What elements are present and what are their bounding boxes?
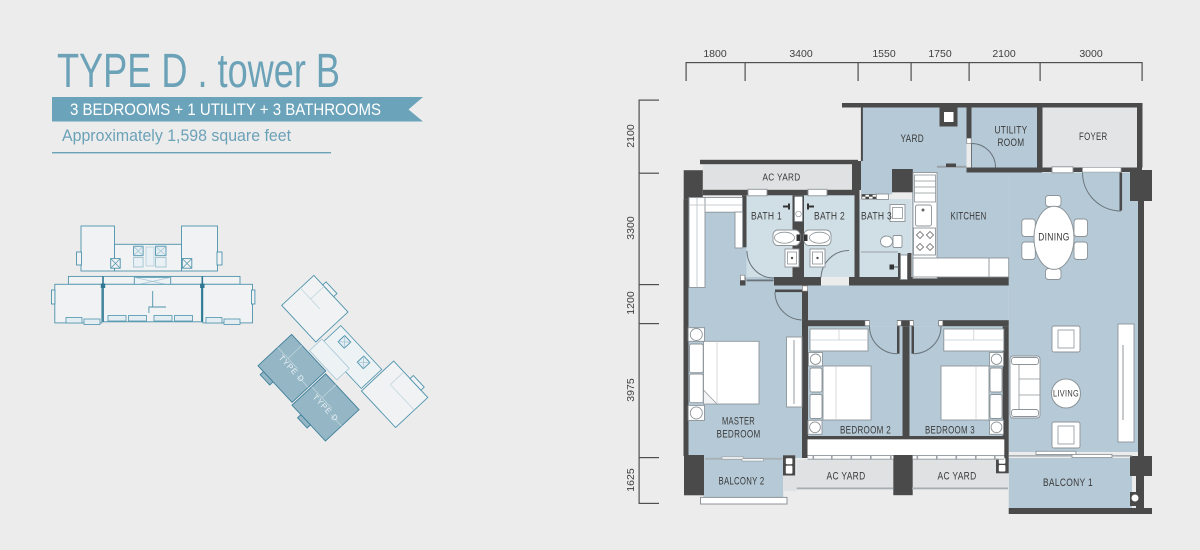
svg-text:BATH 2: BATH 2 — [814, 211, 845, 223]
svg-text:1800: 1800 — [703, 48, 727, 60]
svg-text:TYPE D . tower B: TYPE D . tower B — [57, 45, 340, 98]
svg-text:AC YARD: AC YARD — [938, 471, 977, 483]
svg-text:BATH 1: BATH 1 — [751, 211, 782, 223]
svg-text:YARD: YARD — [901, 133, 925, 145]
svg-text:3 BEDROOMS + 1 UTILITY + 3 BAT: 3 BEDROOMS + 1 UTILITY + 3 BATHROOMS — [70, 100, 381, 119]
svg-text:KITCHEN: KITCHEN — [951, 211, 987, 223]
svg-text:ROOM: ROOM — [998, 137, 1025, 149]
svg-text:3975: 3975 — [625, 378, 637, 402]
svg-text:BEDROOM: BEDROOM — [717, 429, 761, 441]
svg-text:MASTER: MASTER — [722, 416, 755, 428]
svg-text:Approximately 1,598 square fee: Approximately 1,598 square feet — [62, 127, 291, 145]
svg-text:3400: 3400 — [789, 48, 813, 60]
svg-text:LIVING: LIVING — [1053, 389, 1079, 399]
svg-text:2100: 2100 — [992, 48, 1016, 60]
svg-text:FOYER: FOYER — [1079, 131, 1108, 143]
svg-text:AC YARD: AC YARD — [763, 172, 801, 184]
svg-text:3300: 3300 — [625, 216, 637, 240]
svg-text:AC YARD: AC YARD — [827, 471, 866, 483]
svg-text:UTILITY: UTILITY — [995, 125, 1028, 137]
svg-text:DINING: DINING — [1038, 232, 1070, 244]
svg-text:2100: 2100 — [625, 124, 637, 148]
svg-text:BALCONY 1: BALCONY 1 — [1043, 477, 1093, 489]
svg-text:BEDROOM 3: BEDROOM 3 — [925, 425, 975, 437]
svg-text:BALCONY 2: BALCONY 2 — [719, 476, 765, 488]
svg-text:1550: 1550 — [872, 48, 896, 60]
svg-text:1625: 1625 — [625, 468, 637, 492]
svg-text:3000: 3000 — [1079, 48, 1103, 60]
svg-text:BEDROOM 2: BEDROOM 2 — [840, 425, 891, 437]
svg-text:1750: 1750 — [928, 48, 952, 60]
svg-text:1200: 1200 — [625, 291, 637, 315]
svg-text:BATH 3: BATH 3 — [861, 211, 892, 223]
